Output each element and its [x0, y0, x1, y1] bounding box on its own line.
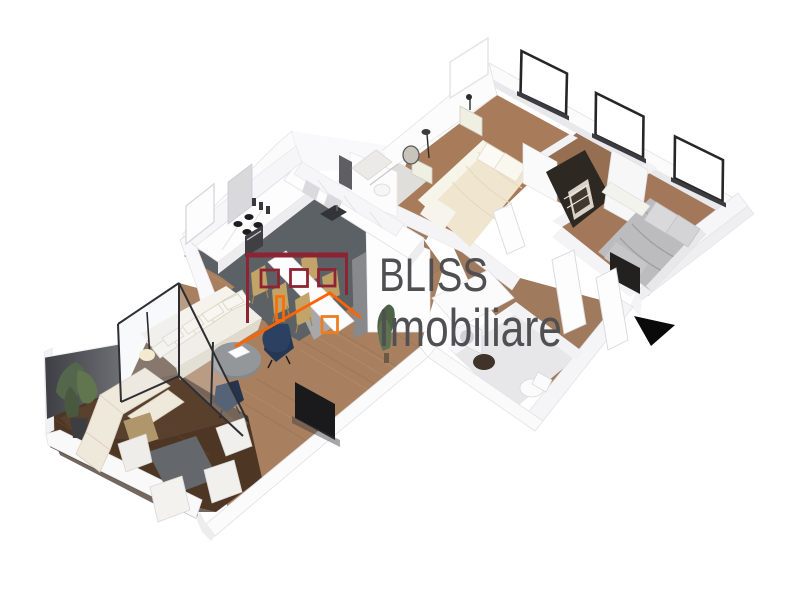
svg-text:Imobiliare: Imobiliare	[378, 299, 562, 358]
svg-text:BLISS: BLISS	[379, 248, 488, 301]
